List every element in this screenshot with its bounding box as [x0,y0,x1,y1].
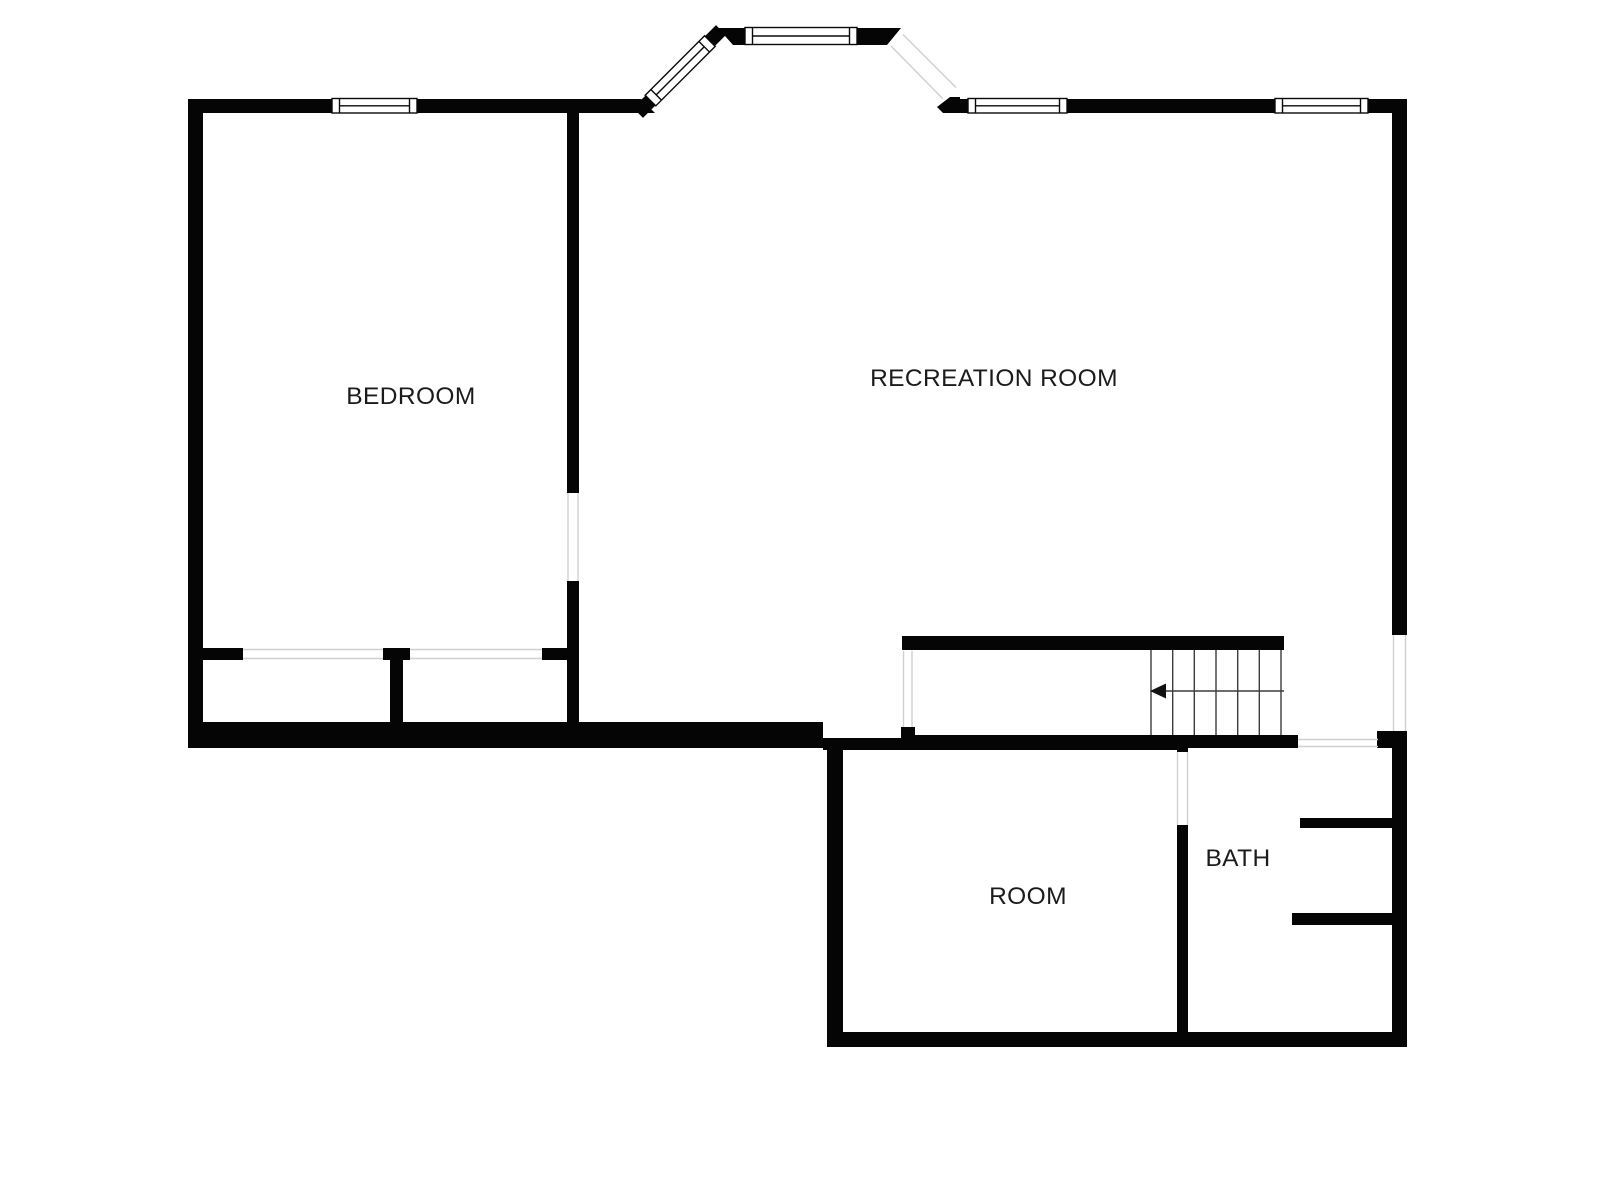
bay-right-diagonal-opening [903,35,956,88]
stairs-direction-arrow-icon [1150,684,1166,699]
bath-label: BATH [1205,845,1270,872]
wall-closet-stub-right [542,648,567,660]
wall-room-left [827,748,843,1047]
wall-bedroom-divider-lower [567,581,579,723]
wall-bottom-upper-section [188,722,823,748]
walls [188,28,1407,1047]
wall-stairs-top [902,636,1284,650]
floor-plan-drawing: BEDROOM RECREATION ROOM ROOM BATH [0,0,1600,1200]
bedroom-label: BEDROOM [346,383,475,410]
wall-stairs-door-block [901,727,915,738]
openings [243,35,1406,826]
wall-bedroom-divider-upper [567,113,579,493]
window-bay-top [745,28,857,45]
window-top-far-right [1275,99,1368,114]
wall-top-left [188,99,655,113]
wall-room-bath-divider-stub [1177,738,1188,752]
wall-closet-stub-left [203,648,243,660]
wall-room-top [823,738,1177,750]
staircase [1150,650,1284,735]
window-bay-left-diagonal [645,36,715,106]
wall-bath-fixture-lower [1292,913,1392,925]
wall-right-stub [1377,731,1394,748]
recreation-room-label: RECREATION ROOM [870,365,1118,392]
wall-left [188,99,203,748]
room-label: ROOM [989,883,1067,910]
wall-right-upper [1392,99,1407,635]
floor-plan-canvas: BEDROOM RECREATION ROOM ROOM BATH [0,0,1600,1200]
bay-right-diagonal-opening [891,46,943,99]
window-top-middle-right [968,99,1067,114]
wall-bath-fixture-upper [1300,818,1392,828]
wall-bottom-lower-section [827,1032,1407,1047]
wall-room-bath-divider [1177,825,1188,1032]
window-top-left [332,99,417,114]
wall-closet-divider [390,656,403,723]
wall-right-lower [1392,731,1407,1047]
